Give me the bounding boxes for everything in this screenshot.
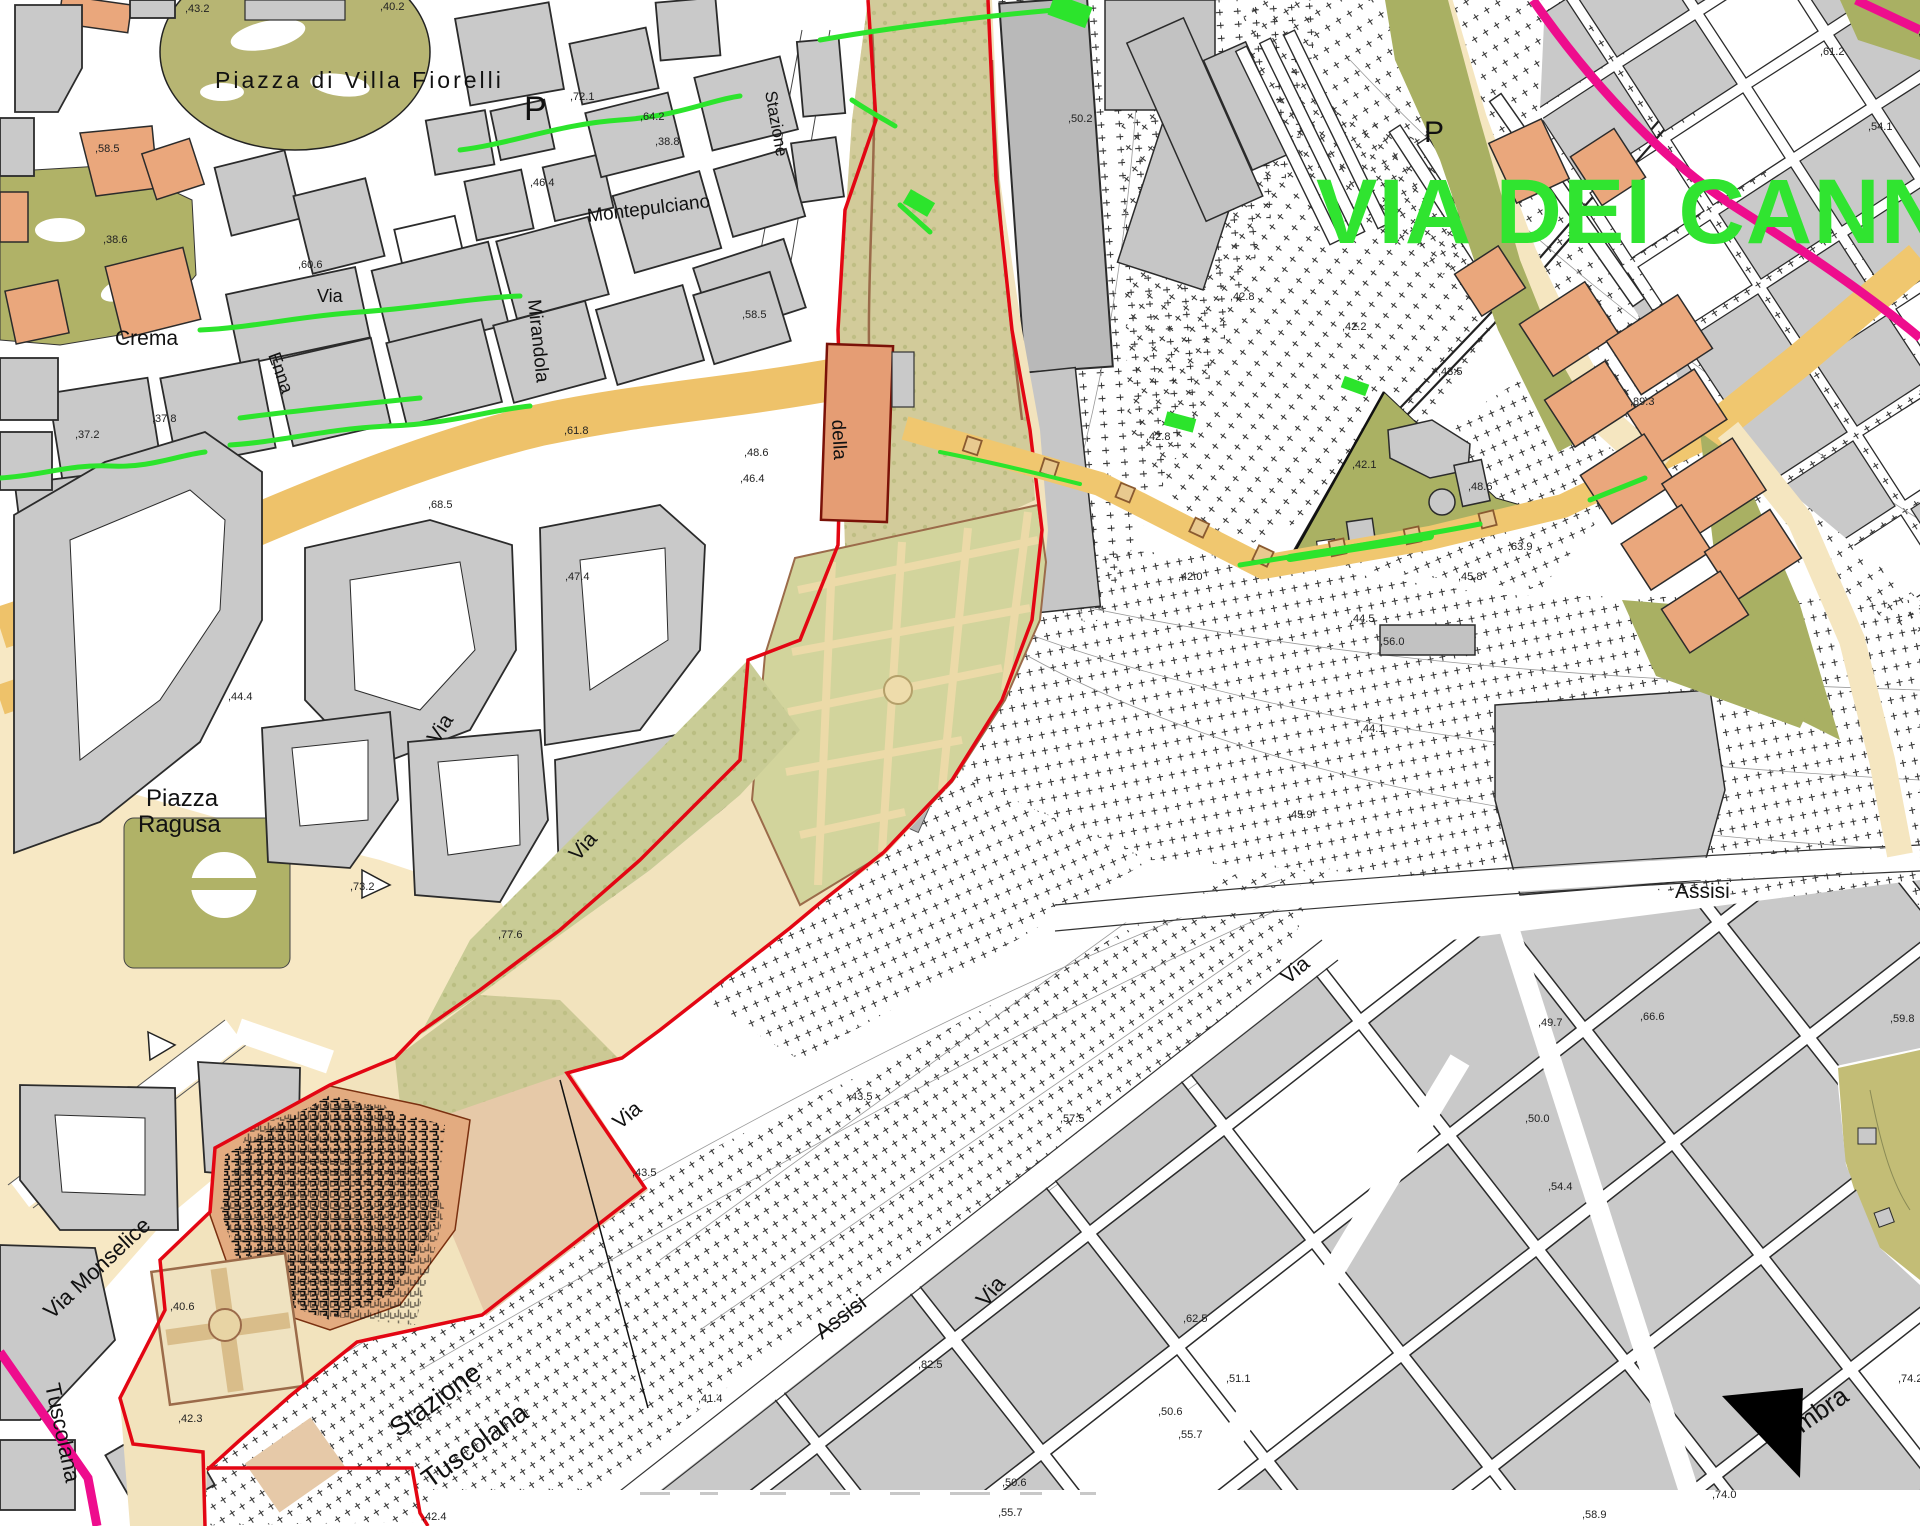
svg-text:,51.1: ,51.1 xyxy=(1226,1373,1250,1385)
svg-text:,45.9: ,45.9 xyxy=(1288,809,1312,821)
svg-text:,59.8: ,59.8 xyxy=(1890,1013,1914,1025)
svg-text:,50.2: ,50.2 xyxy=(1068,113,1092,125)
svg-text:,45.8: ,45.8 xyxy=(1458,571,1482,583)
svg-text:,73.2: ,73.2 xyxy=(350,881,374,893)
svg-text:,44.1: ,44.1 xyxy=(1360,723,1384,735)
svg-text:,40.6: ,40.6 xyxy=(170,1301,194,1313)
svg-text:,42.1: ,42.1 xyxy=(1352,459,1376,471)
svg-text:,58.5: ,58.5 xyxy=(742,309,766,321)
svg-text:,77.6: ,77.6 xyxy=(498,929,522,941)
svg-text:,89.3: ,89.3 xyxy=(1630,396,1654,408)
svg-text:,66.6: ,66.6 xyxy=(1640,1011,1664,1023)
svg-text:,43.5: ,43.5 xyxy=(848,1091,872,1103)
svg-text:,62.5: ,62.5 xyxy=(1183,1313,1207,1325)
svg-text:Ragusa: Ragusa xyxy=(138,811,221,838)
svg-text:,40.2: ,40.2 xyxy=(380,1,404,13)
svg-text:,50.6: ,50.6 xyxy=(1002,1477,1026,1489)
svg-text:,42.2: ,42.2 xyxy=(1342,321,1366,333)
svg-text:,54.4: ,54.4 xyxy=(1548,1181,1572,1193)
svg-text:,74.0: ,74.0 xyxy=(1712,1489,1736,1501)
svg-text:,41.4: ,41.4 xyxy=(698,1393,722,1405)
svg-text:,38.6: ,38.6 xyxy=(103,234,127,246)
svg-text:,55.7: ,55.7 xyxy=(998,1507,1022,1519)
svg-text:,50.0: ,50.0 xyxy=(1525,1113,1549,1125)
svg-text:Via: Via xyxy=(317,286,344,306)
svg-text:Assisi: Assisi xyxy=(1675,880,1730,903)
svg-text:Crema: Crema xyxy=(115,327,178,350)
svg-text:,46.4: ,46.4 xyxy=(530,177,554,189)
svg-text:,48.6: ,48.6 xyxy=(744,447,768,459)
svg-text:Piazza: Piazza xyxy=(146,785,219,812)
svg-text:,37.2: ,37.2 xyxy=(75,429,99,441)
svg-text:,68.5: ,68.5 xyxy=(428,499,452,511)
svg-text:,60.6: ,60.6 xyxy=(298,259,322,271)
svg-text:Piazza di Villa Fiorelli: Piazza di Villa Fiorelli xyxy=(215,67,504,93)
svg-text:P: P xyxy=(524,90,547,128)
svg-text:,58.5: ,58.5 xyxy=(95,143,119,155)
svg-text:,43.2: ,43.2 xyxy=(185,3,209,15)
svg-text:,49.7: ,49.7 xyxy=(1538,1017,1562,1029)
svg-text:,42.3: ,42.3 xyxy=(178,1413,202,1425)
svg-text:,55.7: ,55.7 xyxy=(1178,1429,1202,1441)
svg-text:,42.8: ,42.8 xyxy=(1230,291,1254,303)
svg-text:,38.8: ,38.8 xyxy=(655,136,679,148)
svg-text:,56.0: ,56.0 xyxy=(1380,636,1404,648)
svg-text:,47.4: ,47.4 xyxy=(565,571,589,583)
svg-text:,63.9: ,63.9 xyxy=(1508,541,1532,553)
svg-text:VIA DEI CANNE: VIA DEI CANNE xyxy=(1316,161,1920,263)
svg-text:P: P xyxy=(1424,116,1444,149)
svg-text:,46.4: ,46.4 xyxy=(740,473,764,485)
svg-text:,42.0: ,42.0 xyxy=(1178,571,1202,583)
svg-text:,61.8: ,61.8 xyxy=(564,425,588,437)
svg-text:,54.1: ,54.1 xyxy=(1868,121,1892,133)
svg-text:,44.5: ,44.5 xyxy=(1350,613,1374,625)
svg-text:,82.5: ,82.5 xyxy=(918,1359,942,1371)
svg-text:,72.1: ,72.1 xyxy=(570,91,594,103)
svg-text:,42.4: ,42.4 xyxy=(422,1511,446,1523)
svg-text:della: della xyxy=(827,419,850,461)
svg-text:,61.2: ,61.2 xyxy=(1820,46,1844,58)
svg-text:,43.5: ,43.5 xyxy=(1438,366,1462,378)
svg-text:,37.8: ,37.8 xyxy=(152,413,176,425)
svg-text:,42.8: ,42.8 xyxy=(1146,431,1170,443)
svg-text:,74.2: ,74.2 xyxy=(1898,1373,1920,1385)
svg-text:,48.6: ,48.6 xyxy=(1468,481,1492,493)
svg-text:,43.5: ,43.5 xyxy=(632,1167,656,1179)
svg-text:,57.5: ,57.5 xyxy=(1060,1113,1084,1125)
svg-text:,58.9: ,58.9 xyxy=(1582,1509,1606,1521)
svg-text:,44.4: ,44.4 xyxy=(228,691,252,703)
svg-text:,50.6: ,50.6 xyxy=(1158,1406,1182,1418)
svg-text:,64.2: ,64.2 xyxy=(640,111,664,123)
